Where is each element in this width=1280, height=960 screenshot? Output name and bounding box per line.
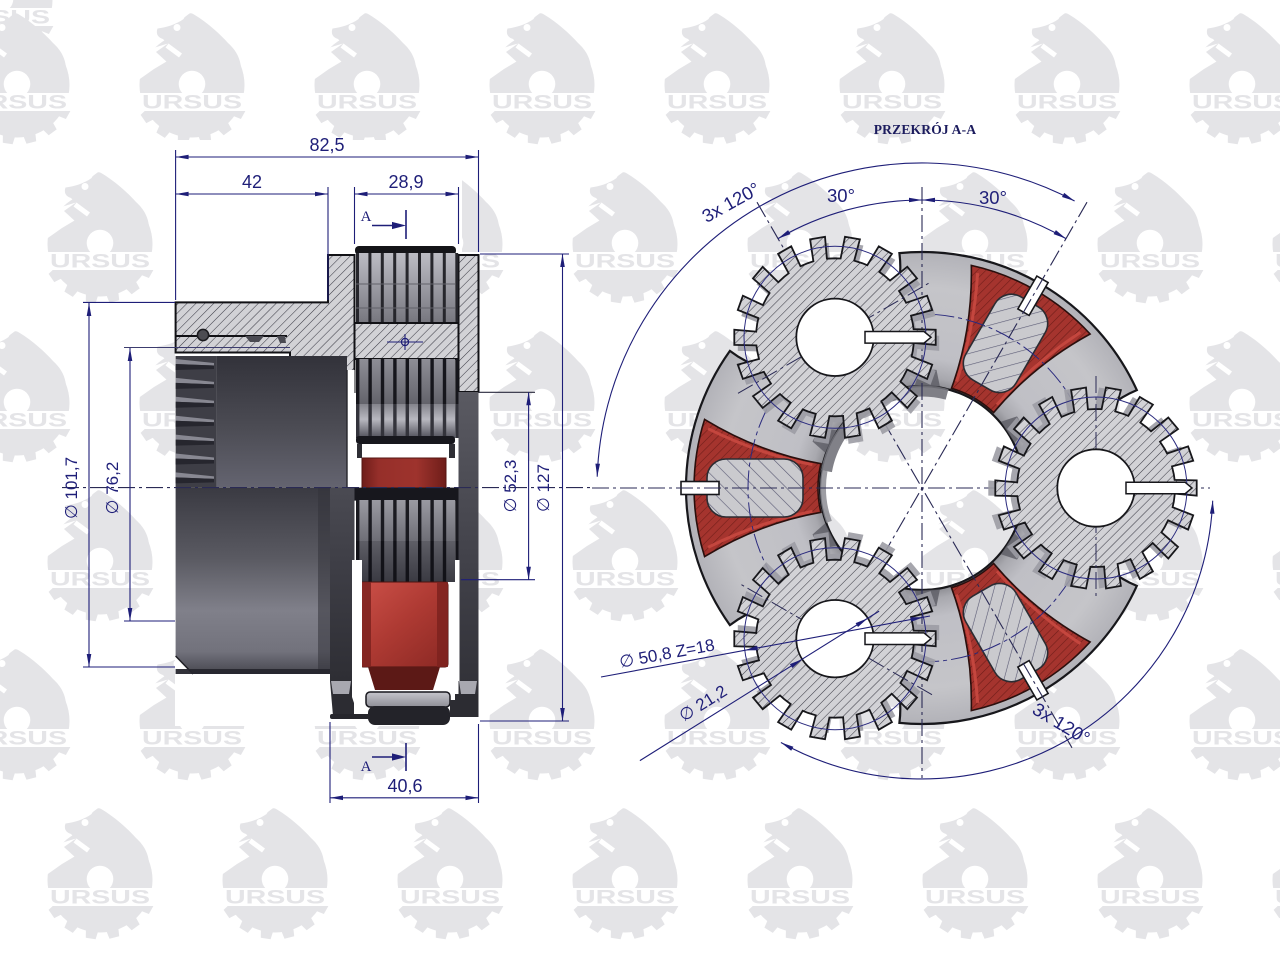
svg-text:∅ 76,2: ∅ 76,2 — [103, 462, 122, 515]
svg-text:82,5: 82,5 — [309, 135, 344, 155]
svg-text:28,9: 28,9 — [388, 172, 423, 192]
svg-text:∅ 127: ∅ 127 — [534, 464, 553, 512]
svg-text:PRZEKRÓJ A-A: PRZEKRÓJ A-A — [874, 122, 977, 137]
svg-text:30°: 30° — [979, 187, 1007, 208]
svg-text:40,6: 40,6 — [387, 776, 422, 796]
svg-text:A: A — [361, 209, 372, 225]
svg-text:A: A — [361, 759, 372, 775]
svg-text:∅ 101,7: ∅ 101,7 — [62, 457, 81, 519]
svg-text:∅ 52,3: ∅ 52,3 — [501, 460, 520, 513]
svg-text:30°: 30° — [827, 185, 855, 206]
svg-text:42: 42 — [242, 172, 262, 192]
